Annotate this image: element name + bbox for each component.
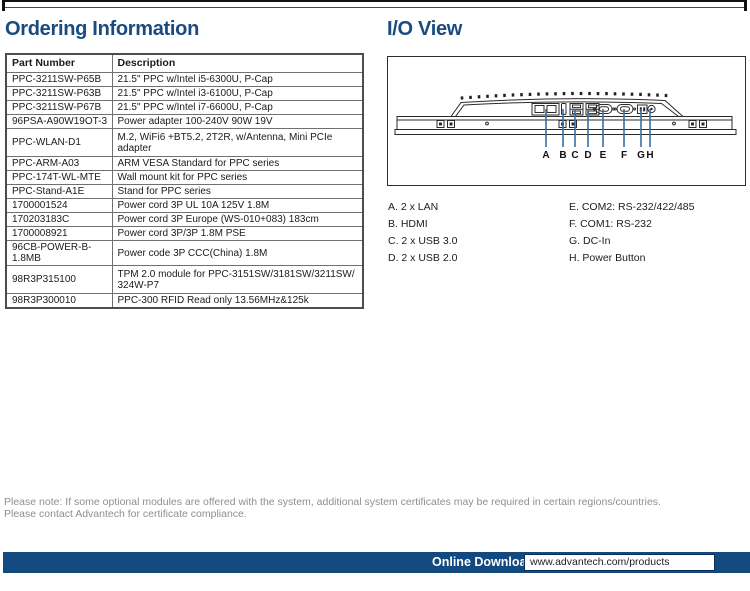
description-cell: Stand for PPC series (112, 185, 363, 199)
legend-item: H. Power Button (569, 250, 694, 267)
description-cell: 21.5" PPC w/Intel i7-6600U, P-Cap (112, 101, 363, 115)
ordering-information-heading: Ordering Information (5, 18, 199, 41)
port-letter: A (542, 150, 549, 161)
description-cell: Power cord 3P UL 10A 125V 1.8M (112, 199, 363, 213)
previous-section-border-left (2, 0, 5, 11)
mounting-brackets (437, 121, 707, 128)
part-number-cell: 1700008921 (6, 227, 112, 241)
footer-notes: Please note: If some optional modules ar… (4, 496, 661, 521)
description-cell: PPC-300 RFID Read only 13.56MHz&125k (112, 294, 363, 309)
table-row: PPC-3211SW-P65B21.5" PPC w/Intel i5-6300… (6, 73, 363, 87)
legend-item: E. COM2: RS-232/422/485 (569, 199, 694, 216)
port-letter: F (621, 150, 627, 161)
ordering-table: Part Number Description PPC-3211SW-P65B2… (5, 53, 364, 309)
online-download-label: Online Download (432, 552, 534, 573)
power-button-icon (648, 105, 655, 112)
table-header-row: Part Number Description (6, 54, 363, 73)
datasheet-page: Ordering Information Part Number Descrip… (0, 0, 750, 591)
table-row: PPC-174T-WL-MTEWall mount kit for PPC se… (6, 171, 363, 185)
column-header-part-number: Part Number (6, 54, 112, 73)
legend-item: A. 2 x LAN (388, 199, 457, 216)
port-legend-left: A. 2 x LANB. HDMIC. 2 x USB 3.0D. 2 x US… (388, 199, 457, 267)
table-row: 98R3P300010PPC-300 RFID Read only 13.56M… (6, 294, 363, 309)
io-view-diagram: A B C D E F G H (387, 56, 746, 186)
description-cell: M.2, WiFi6 +BT5.2, 2T2R, w/Antenna, Mini… (112, 129, 363, 157)
port-letter: E (600, 150, 607, 161)
port-letter: B (559, 150, 566, 161)
table-row: 98R3P315100TPM 2.0 module for PPC-3151SW… (6, 266, 363, 294)
table-row: 1700008921Power cord 3P/3P 1.8M PSE (6, 227, 363, 241)
dc-in-icon (638, 105, 648, 114)
part-number-cell: PPC-ARM-A03 (6, 157, 112, 171)
legend-item: F. COM1: RS-232 (569, 216, 694, 233)
part-number-cell: 1700001524 (6, 199, 112, 213)
part-number-cell: PPC-Stand-A1E (6, 185, 112, 199)
io-view-heading: I/O View (387, 18, 462, 41)
previous-section-border (2, 0, 747, 8)
part-number-cell: 96CB-POWER-B-1.8MB (6, 241, 112, 266)
table-row: PPC-Stand-A1EStand for PPC series (6, 185, 363, 199)
table-row: PPC-WLAN-D1M.2, WiFi6 +BT5.2, 2T2R, w/An… (6, 129, 363, 157)
table-row: PPC-ARM-A03ARM VESA Standard for PPC ser… (6, 157, 363, 171)
download-url[interactable]: www.advantech.com/products (524, 554, 715, 571)
part-number-cell: PPC-3211SW-P63B (6, 87, 112, 101)
description-cell: TPM 2.0 module for PPC-3151SW/3181SW/321… (112, 266, 363, 294)
description-cell: Wall mount kit for PPC series (112, 171, 363, 185)
part-number-cell: 170203183C (6, 213, 112, 227)
part-number-cell: PPC-174T-WL-MTE (6, 171, 112, 185)
table-row: 1700001524Power cord 3P UL 10A 125V 1.8M (6, 199, 363, 213)
column-header-description: Description (112, 54, 363, 73)
table-row: 96PSA-A90W19OT-3Power adapter 100-240V 9… (6, 115, 363, 129)
legend-item: C. 2 x USB 3.0 (388, 233, 457, 250)
note-line: Please contact Advantech for certificate… (4, 508, 661, 520)
table-row: PPC-3211SW-P67B21.5" PPC w/Intel i7-6600… (6, 101, 363, 115)
description-cell: Power cord 3P Europe (WS-010+083) 183cm (112, 213, 363, 227)
port-legend-right: E. COM2: RS-232/422/485F. COM1: RS-232G.… (569, 199, 694, 267)
legend-item: G. DC-In (569, 233, 694, 250)
device-rear-drawing: A B C D E F G H (388, 57, 745, 185)
table-row: 170203183CPower cord 3P Europe (WS-010+0… (6, 213, 363, 227)
port-letter: G (637, 150, 645, 161)
table-row: 96CB-POWER-B-1.8MBPower code 3P CCC(Chin… (6, 241, 363, 266)
description-cell: 21.5" PPC w/Intel i5-6300U, P-Cap (112, 73, 363, 87)
description-cell: 21.5" PPC w/Intel i3-6100U, P-Cap (112, 87, 363, 101)
part-number-cell: PPC-3211SW-P65B (6, 73, 112, 87)
download-bar: Online Download www.advantech.com/produc… (3, 552, 750, 573)
port-letter: H (646, 150, 653, 161)
com1-port-icon (614, 105, 635, 114)
part-number-cell: PPC-WLAN-D1 (6, 129, 112, 157)
description-cell: ARM VESA Standard for PPC series (112, 157, 363, 171)
description-cell: Power adapter 100-240V 90W 19V (112, 115, 363, 129)
previous-section-border-right (744, 0, 747, 11)
port-letter: D (584, 150, 591, 161)
note-line: Please note: If some optional modules ar… (4, 496, 661, 508)
part-number-cell: 98R3P300010 (6, 294, 112, 309)
legend-item: D. 2 x USB 2.0 (388, 250, 457, 267)
description-cell: Power cord 3P/3P 1.8M PSE (112, 227, 363, 241)
legend-item: B. HDMI (388, 216, 457, 233)
part-number-cell: 98R3P315100 (6, 266, 112, 294)
part-number-cell: 96PSA-A90W19OT-3 (6, 115, 112, 129)
port-letter: C (571, 150, 578, 161)
table-row: PPC-3211SW-P63B21.5" PPC w/Intel i3-6100… (6, 87, 363, 101)
part-number-cell: PPC-3211SW-P67B (6, 101, 112, 115)
description-cell: Power code 3P CCC(China) 1.8M (112, 241, 363, 266)
usb3-ports-icon (570, 104, 583, 116)
